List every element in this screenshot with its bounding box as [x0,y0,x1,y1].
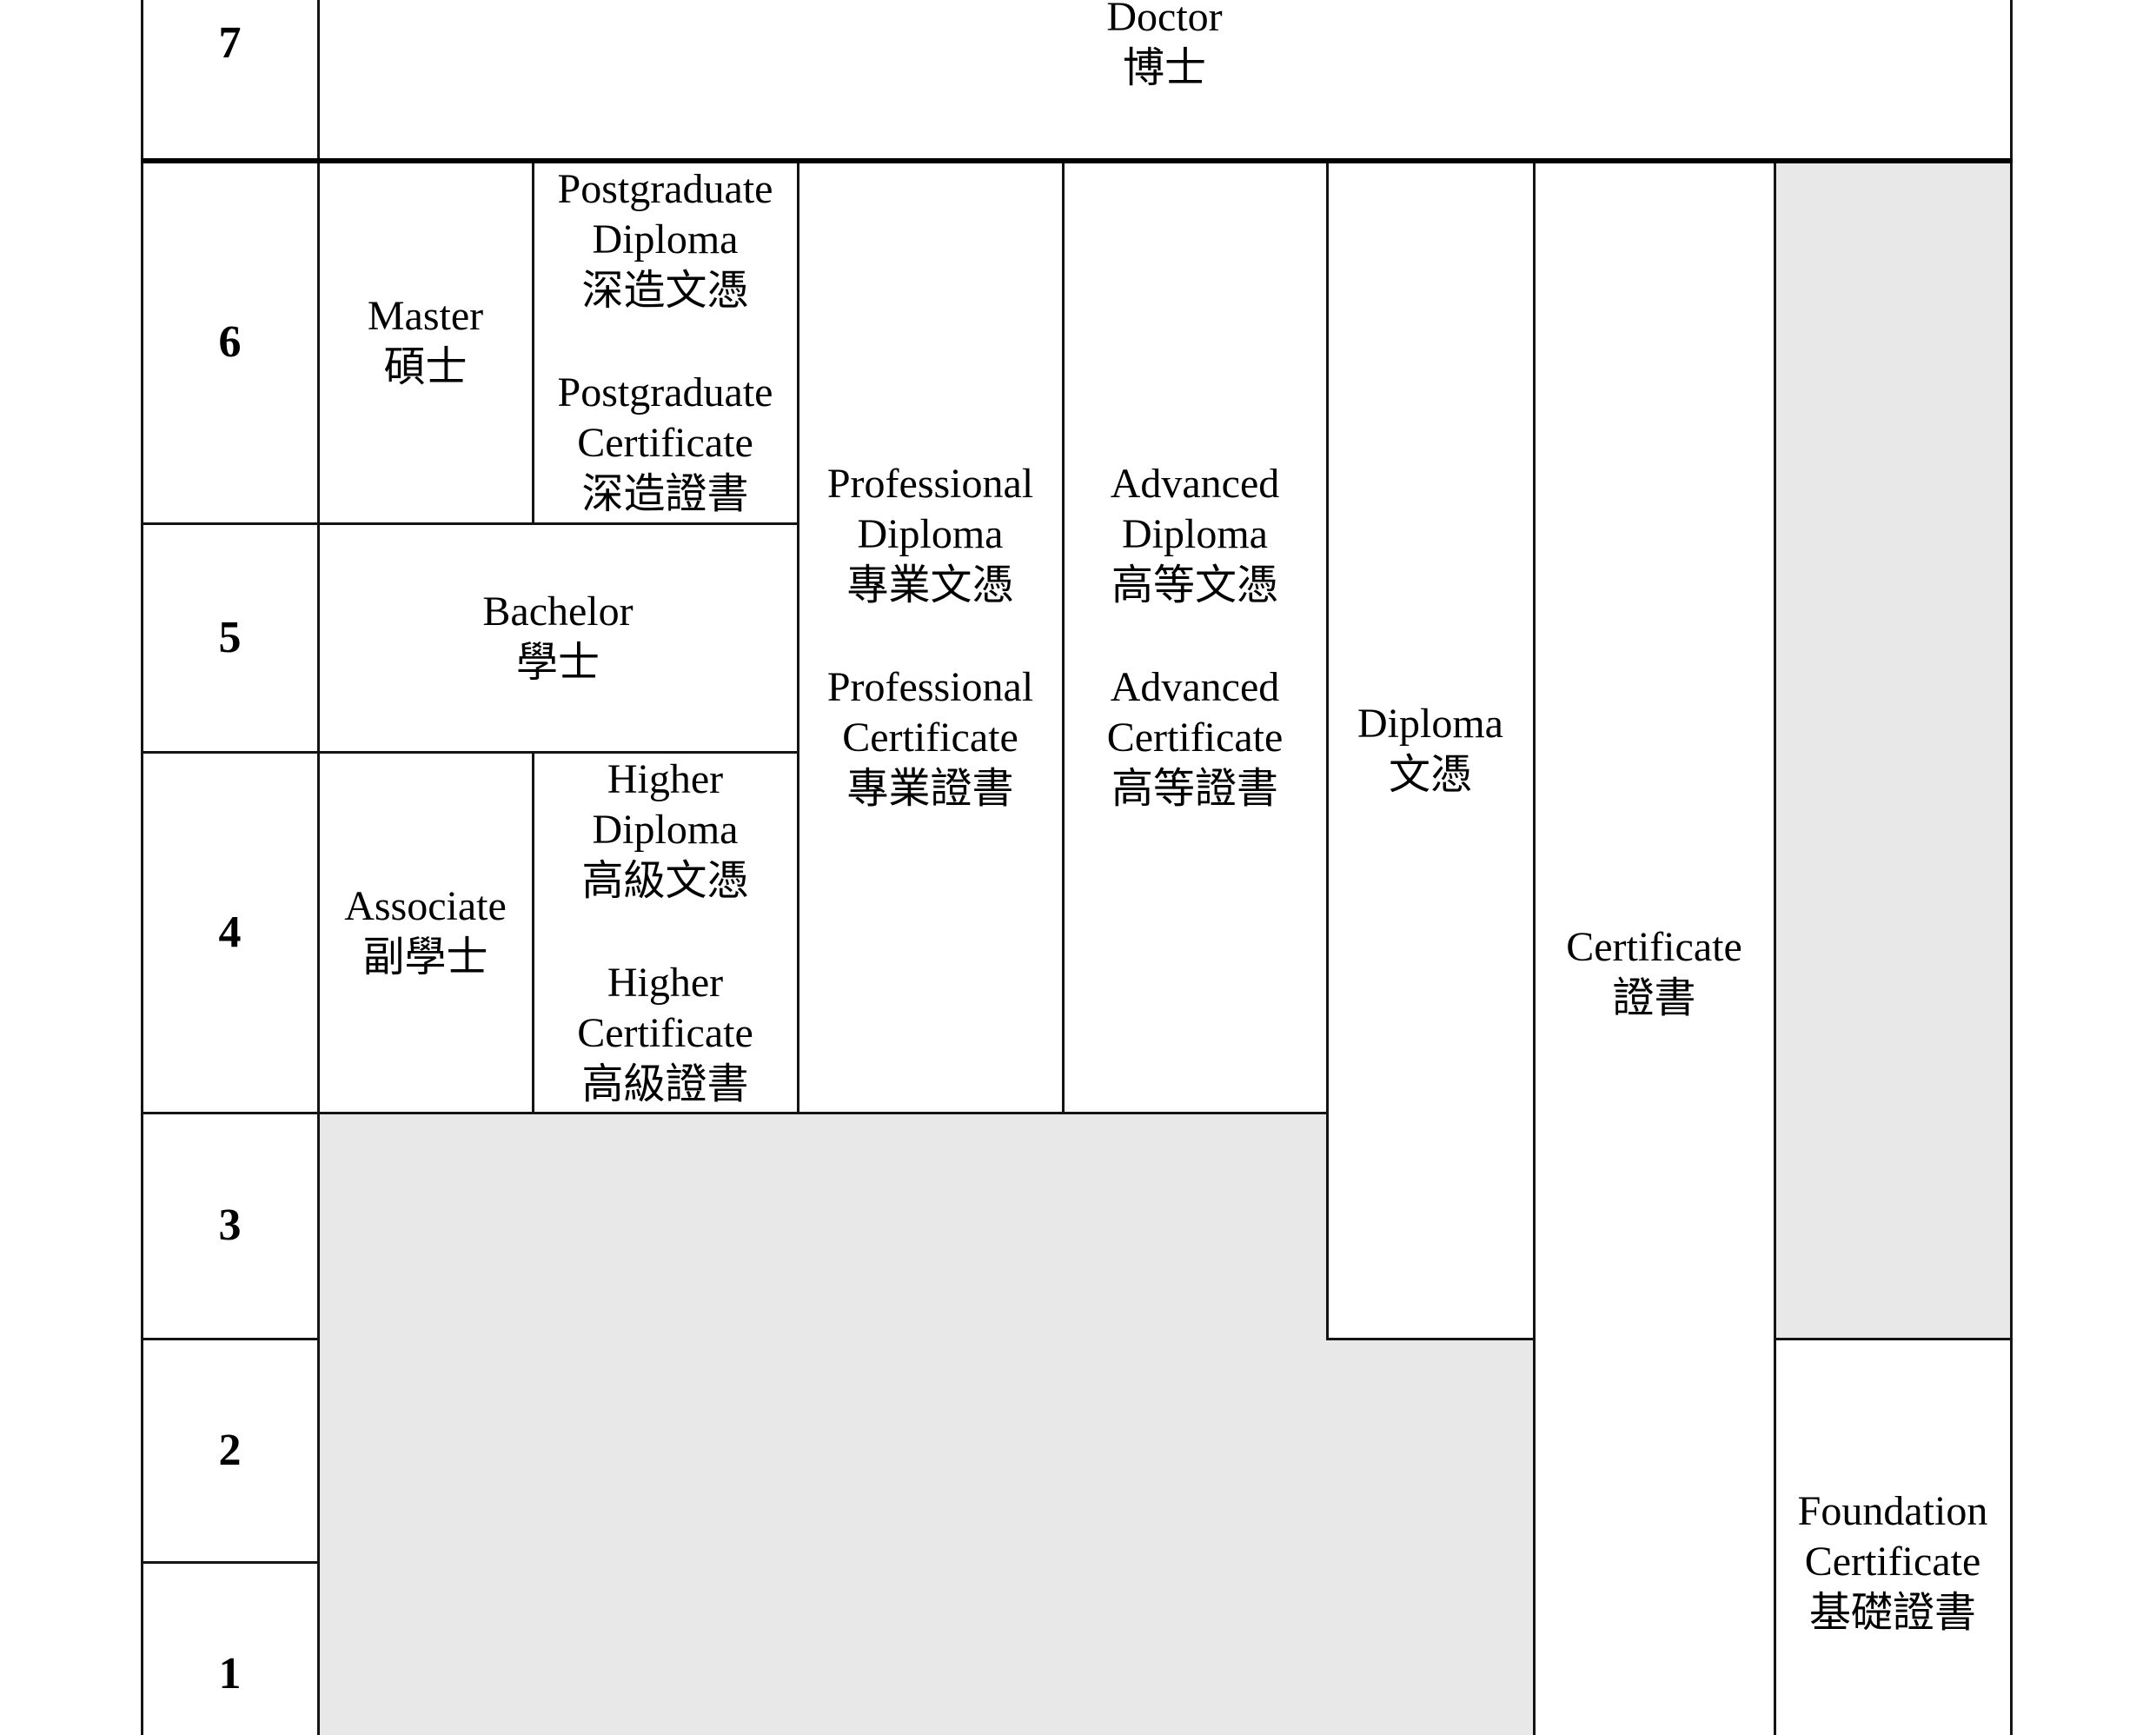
cell-professional-diploma-certificate: Professional Diploma 專業文憑 Professional C… [798,161,1063,1113]
level-2-label: 2 [142,1339,318,1562]
grid-line-advanced-diploma [1326,161,1329,1339]
grid-line-associate-higher [532,752,534,1113]
cell-doctor: Doctor 博士 [318,0,2011,161]
cell-certificate: Certificate 證書 [1534,161,1775,1735]
grid-line-master-postgraduate [532,161,534,523]
grid-line-levels-column-right [317,0,320,1735]
shaded-region-levels-1-2-diploma-column [1327,1339,1534,1735]
level-4-label: 4 [142,752,318,1113]
grid-line-table-right [2010,0,2013,1735]
cell-associate: Associate 副學士 [318,752,533,1113]
grid-line-level3-level2-levels-column [141,1338,320,1340]
grid-line-foundation-cell-top [1774,1338,2013,1340]
qf-levels-table: 7 6 5 4 3 2 1 Doctor 博士 Master 碩士 Postgr… [0,0,2156,1735]
cell-higher-diploma-certificate: Higher Diploma 高級文憑 Higher Certificate 高… [533,752,798,1113]
grid-line-level4-level3 [141,1112,1328,1114]
cell-postgraduate-diploma-certificate: Postgraduate Diploma 深造文憑 Postgraduate C… [533,161,798,523]
cell-bachelor: Bachelor 學士 [318,523,798,752]
cell-foundation-certificate: Foundation Certificate 基礎證書 [1775,1339,2011,1735]
level-7-label: 7 [142,0,318,161]
grid-line-diploma-cell-bottom [1326,1338,1535,1340]
level-6-label: 6 [142,161,318,523]
level-5-label: 5 [142,523,318,752]
grid-line-certificate-foundation [1774,161,1776,1735]
cell-advanced-diploma-certificate: Advanced Diploma 高等文憑 Advanced Certifica… [1063,161,1327,1113]
level-1-label: 1 [142,1562,318,1735]
shaded-region-levels-3-6-foundation-column [1775,161,2011,1339]
grid-line-level7-level6-thick [141,158,2013,163]
grid-line-postgraduate-professional [797,161,799,1113]
grid-line-level6-level5 [141,522,799,525]
cell-diploma: Diploma 文憑 [1327,161,1534,1339]
shaded-region-levels-1-3-left-columns [318,1113,1327,1735]
grid-line-level2-level1-levels-column [141,1561,320,1564]
grid-line-level5-level4 [141,751,799,754]
grid-line-professional-advanced [1062,161,1065,1113]
cell-master: Master 碩士 [318,161,533,523]
level-3-label: 3 [142,1113,318,1339]
grid-line-diploma-certificate [1533,161,1536,1735]
grid-line-table-left [141,0,143,1735]
